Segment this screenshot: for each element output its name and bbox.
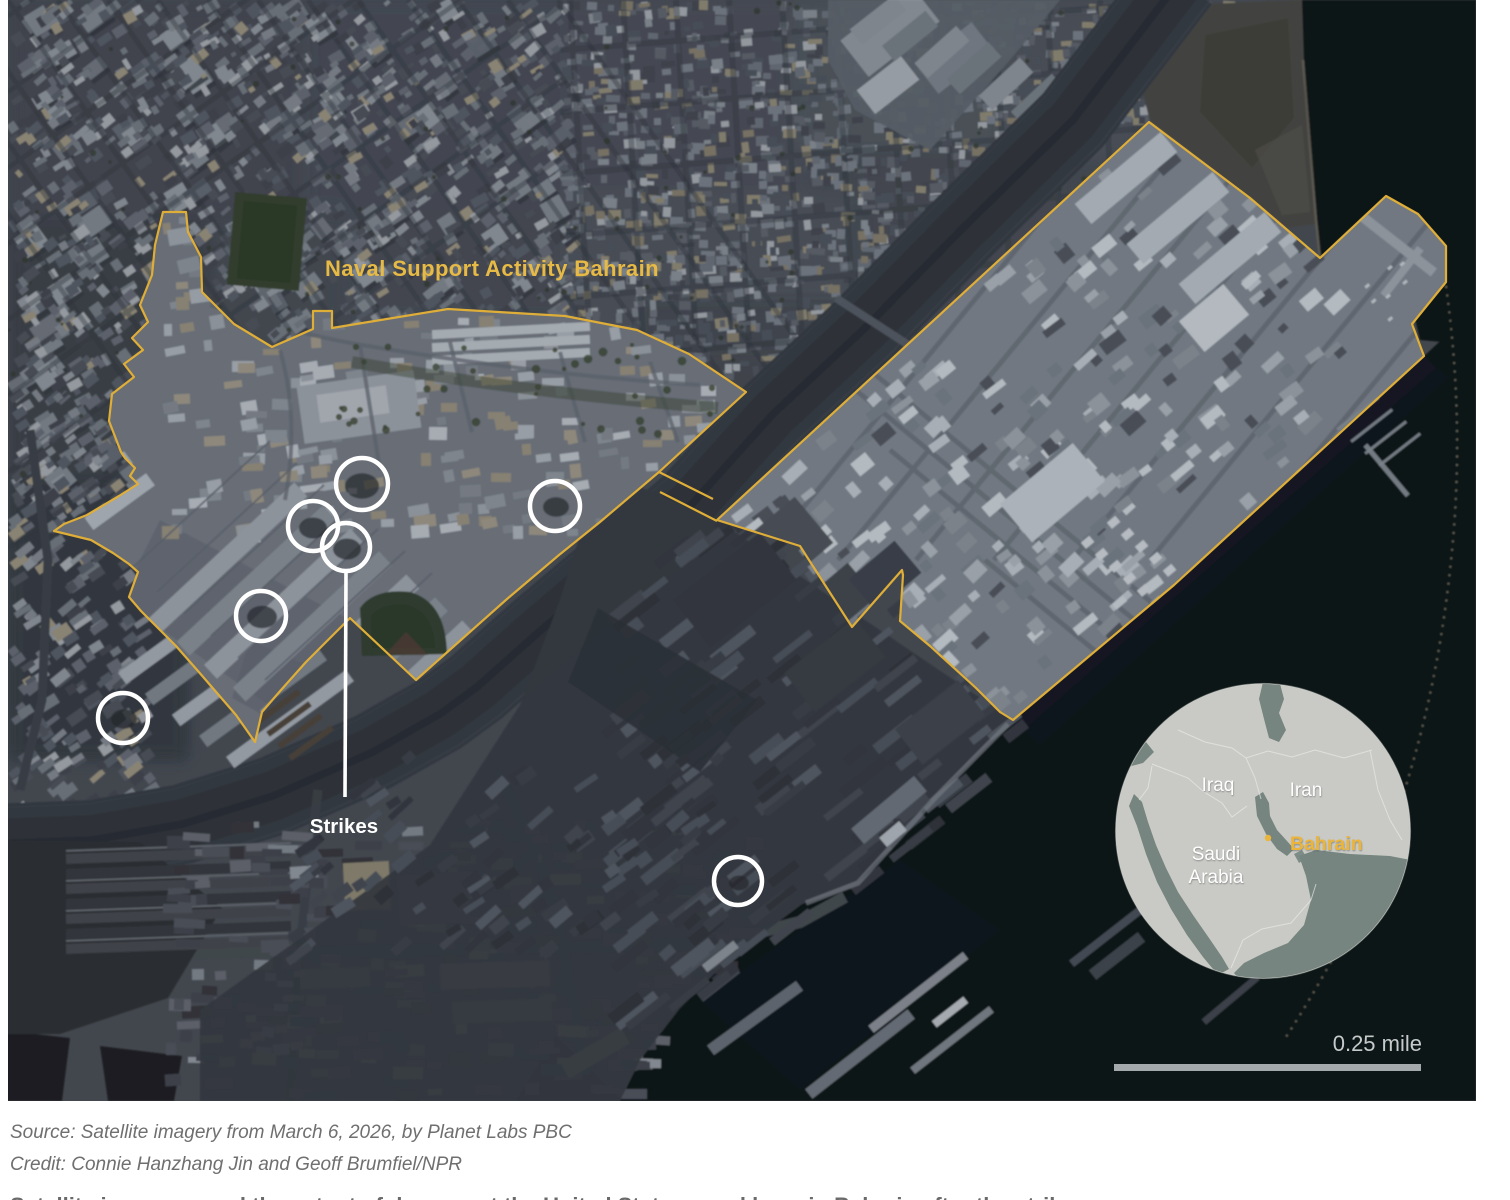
svg-text:Arabia: Arabia <box>1189 867 1244 888</box>
svg-text:0.25 mile: 0.25 mile <box>1333 1031 1422 1056</box>
svg-text:Iran: Iran <box>1290 780 1323 801</box>
svg-text:Naval Support Activity Bahrain: Naval Support Activity Bahrain <box>325 256 659 281</box>
svg-text:Iraq: Iraq <box>1202 775 1235 796</box>
svg-text:Saudi: Saudi <box>1192 844 1241 865</box>
svg-text:Strikes: Strikes <box>310 815 378 838</box>
svg-text:Bahrain: Bahrain <box>1290 833 1363 855</box>
